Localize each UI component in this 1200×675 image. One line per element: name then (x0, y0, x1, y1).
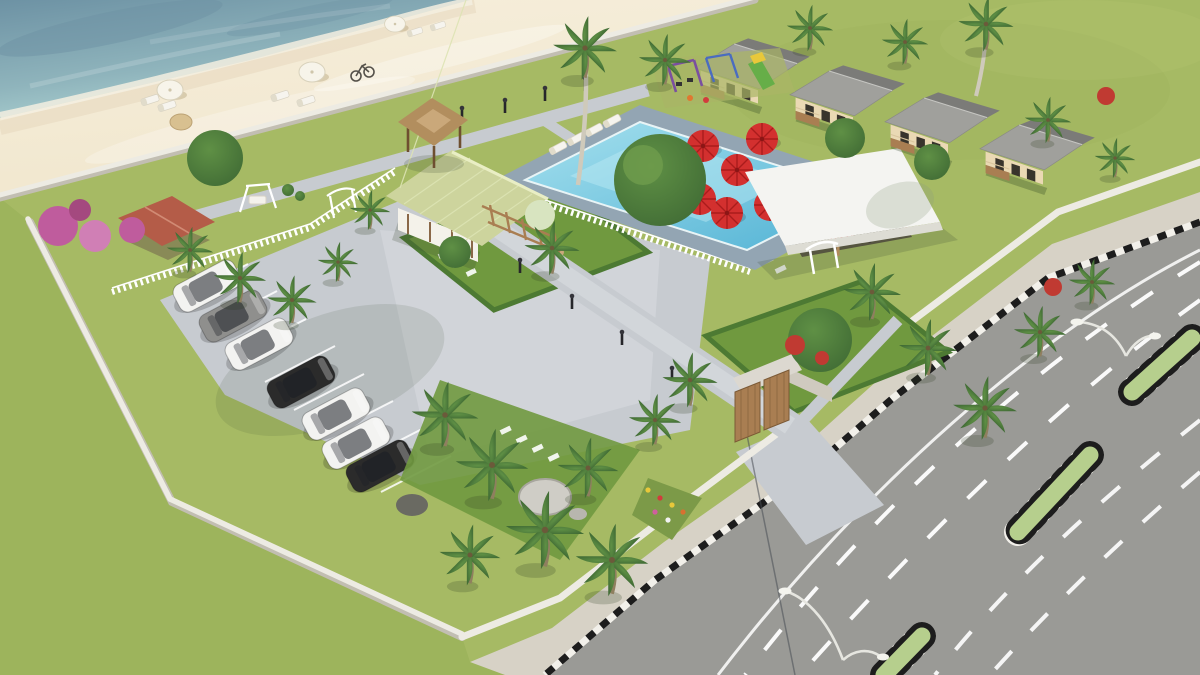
red-shrub (815, 351, 829, 365)
boulder (569, 508, 587, 520)
red-shrub (1044, 278, 1062, 296)
boulder (396, 494, 428, 516)
topiary-ball (282, 184, 294, 196)
gate-door (764, 370, 789, 430)
scene-canvas (0, 0, 1200, 675)
tree-highlight (623, 145, 663, 185)
tree (614, 134, 706, 226)
tree (914, 144, 950, 180)
swing-seat (676, 82, 682, 86)
tree (825, 118, 865, 158)
bougainvillea (119, 217, 145, 243)
red-shrub (785, 335, 805, 355)
spring-rider (687, 95, 693, 101)
bougainvillea (79, 220, 111, 252)
topiary-ball (295, 191, 305, 201)
bougainvillea (69, 199, 91, 221)
tree (187, 130, 243, 186)
resort-aerial-render (0, 0, 1200, 675)
white-flower-bush (525, 200, 555, 230)
spring-rider (703, 97, 709, 103)
gate-door (735, 382, 760, 442)
red-shrub (1097, 87, 1115, 105)
beach-driftwood (170, 114, 192, 130)
tree (439, 236, 471, 268)
swing-seat (687, 78, 693, 82)
